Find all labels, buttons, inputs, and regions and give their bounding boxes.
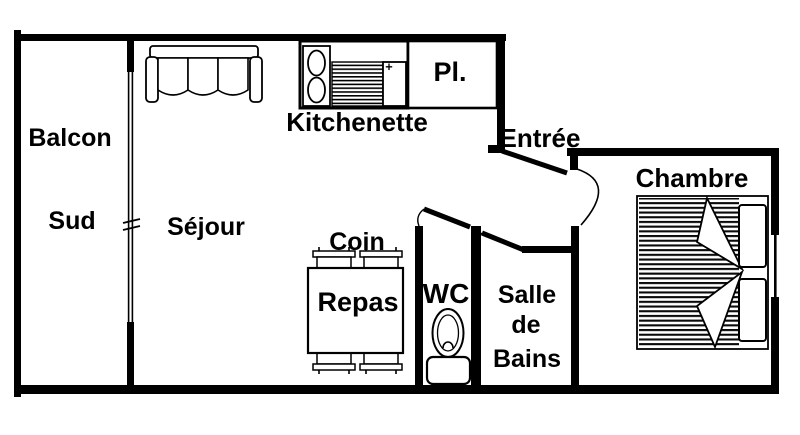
label-placard: Pl.	[433, 57, 466, 87]
chambre-wall-right-lower	[771, 297, 779, 387]
label-repas: Repas	[317, 287, 398, 317]
balcony-partition-upper	[127, 38, 134, 72]
floor-plan: Balcon Sud Séjour Kitchenette Pl. Entrée…	[0, 0, 800, 435]
label-sud: Sud	[48, 207, 95, 235]
salle-de-bains-wall-right	[571, 226, 579, 385]
chair-backrest	[313, 364, 355, 370]
label-coin: Coin	[329, 228, 385, 256]
pillow-bottom	[739, 279, 766, 341]
sofa-armrest-left	[146, 57, 158, 102]
label-sejour: Séjour	[167, 213, 245, 241]
label-de: de	[511, 311, 540, 339]
label-kitchenette: Kitchenette	[286, 107, 428, 137]
balcony-window	[123, 72, 140, 322]
label-chambre: Chambre	[636, 163, 749, 193]
label-bains: Bains	[493, 345, 561, 373]
sink-outline	[383, 62, 406, 106]
wc-wall-right	[471, 226, 481, 385]
label-wc: WC	[423, 278, 470, 309]
label-salle: Salle	[498, 281, 556, 309]
balcony-partition-lower	[127, 322, 134, 388]
chair-bottom-right	[360, 352, 402, 374]
chambre-door-swing	[577, 169, 599, 225]
floor-plan-page: Balcon Sud Séjour Kitchenette Pl. Entrée…	[0, 0, 800, 435]
label-entree: Entrée	[500, 123, 581, 153]
sink-drainer-icon	[332, 62, 383, 106]
sofa-armrest-right	[250, 57, 262, 102]
chair-bottom-left	[313, 352, 355, 374]
sofa-cushion-3	[218, 58, 248, 95]
chair-backrest	[360, 364, 402, 370]
stove-icon	[303, 46, 330, 106]
pillow-top	[739, 205, 766, 267]
balcony-window-gap	[126, 72, 135, 322]
toilet-tank	[427, 357, 470, 384]
chambre-wall-top	[567, 148, 779, 156]
wall-left	[14, 30, 21, 397]
chambre-wall-right-upper	[771, 156, 779, 235]
sink-basin-icon	[383, 62, 406, 106]
chambre-window-line	[774, 235, 777, 297]
sofa-cushion-1	[158, 58, 188, 95]
sofa-back	[150, 46, 258, 58]
label-balcon: Balcon	[28, 124, 111, 152]
bed-icon	[637, 196, 768, 349]
wc-door-leaf	[424, 209, 470, 227]
toilet-icon	[427, 309, 470, 388]
salle-de-bains-door-leaf	[482, 233, 524, 250]
kitchenette-counter	[300, 41, 408, 108]
salle-de-bains-wall-top	[522, 246, 572, 253]
chambre-door-stub	[570, 156, 578, 170]
sofa-cushion-2	[188, 58, 218, 95]
chambre-window	[771, 235, 779, 297]
wc-door-swing	[418, 209, 424, 226]
sofa-icon	[146, 46, 262, 102]
entry-door-leaf	[502, 151, 567, 173]
